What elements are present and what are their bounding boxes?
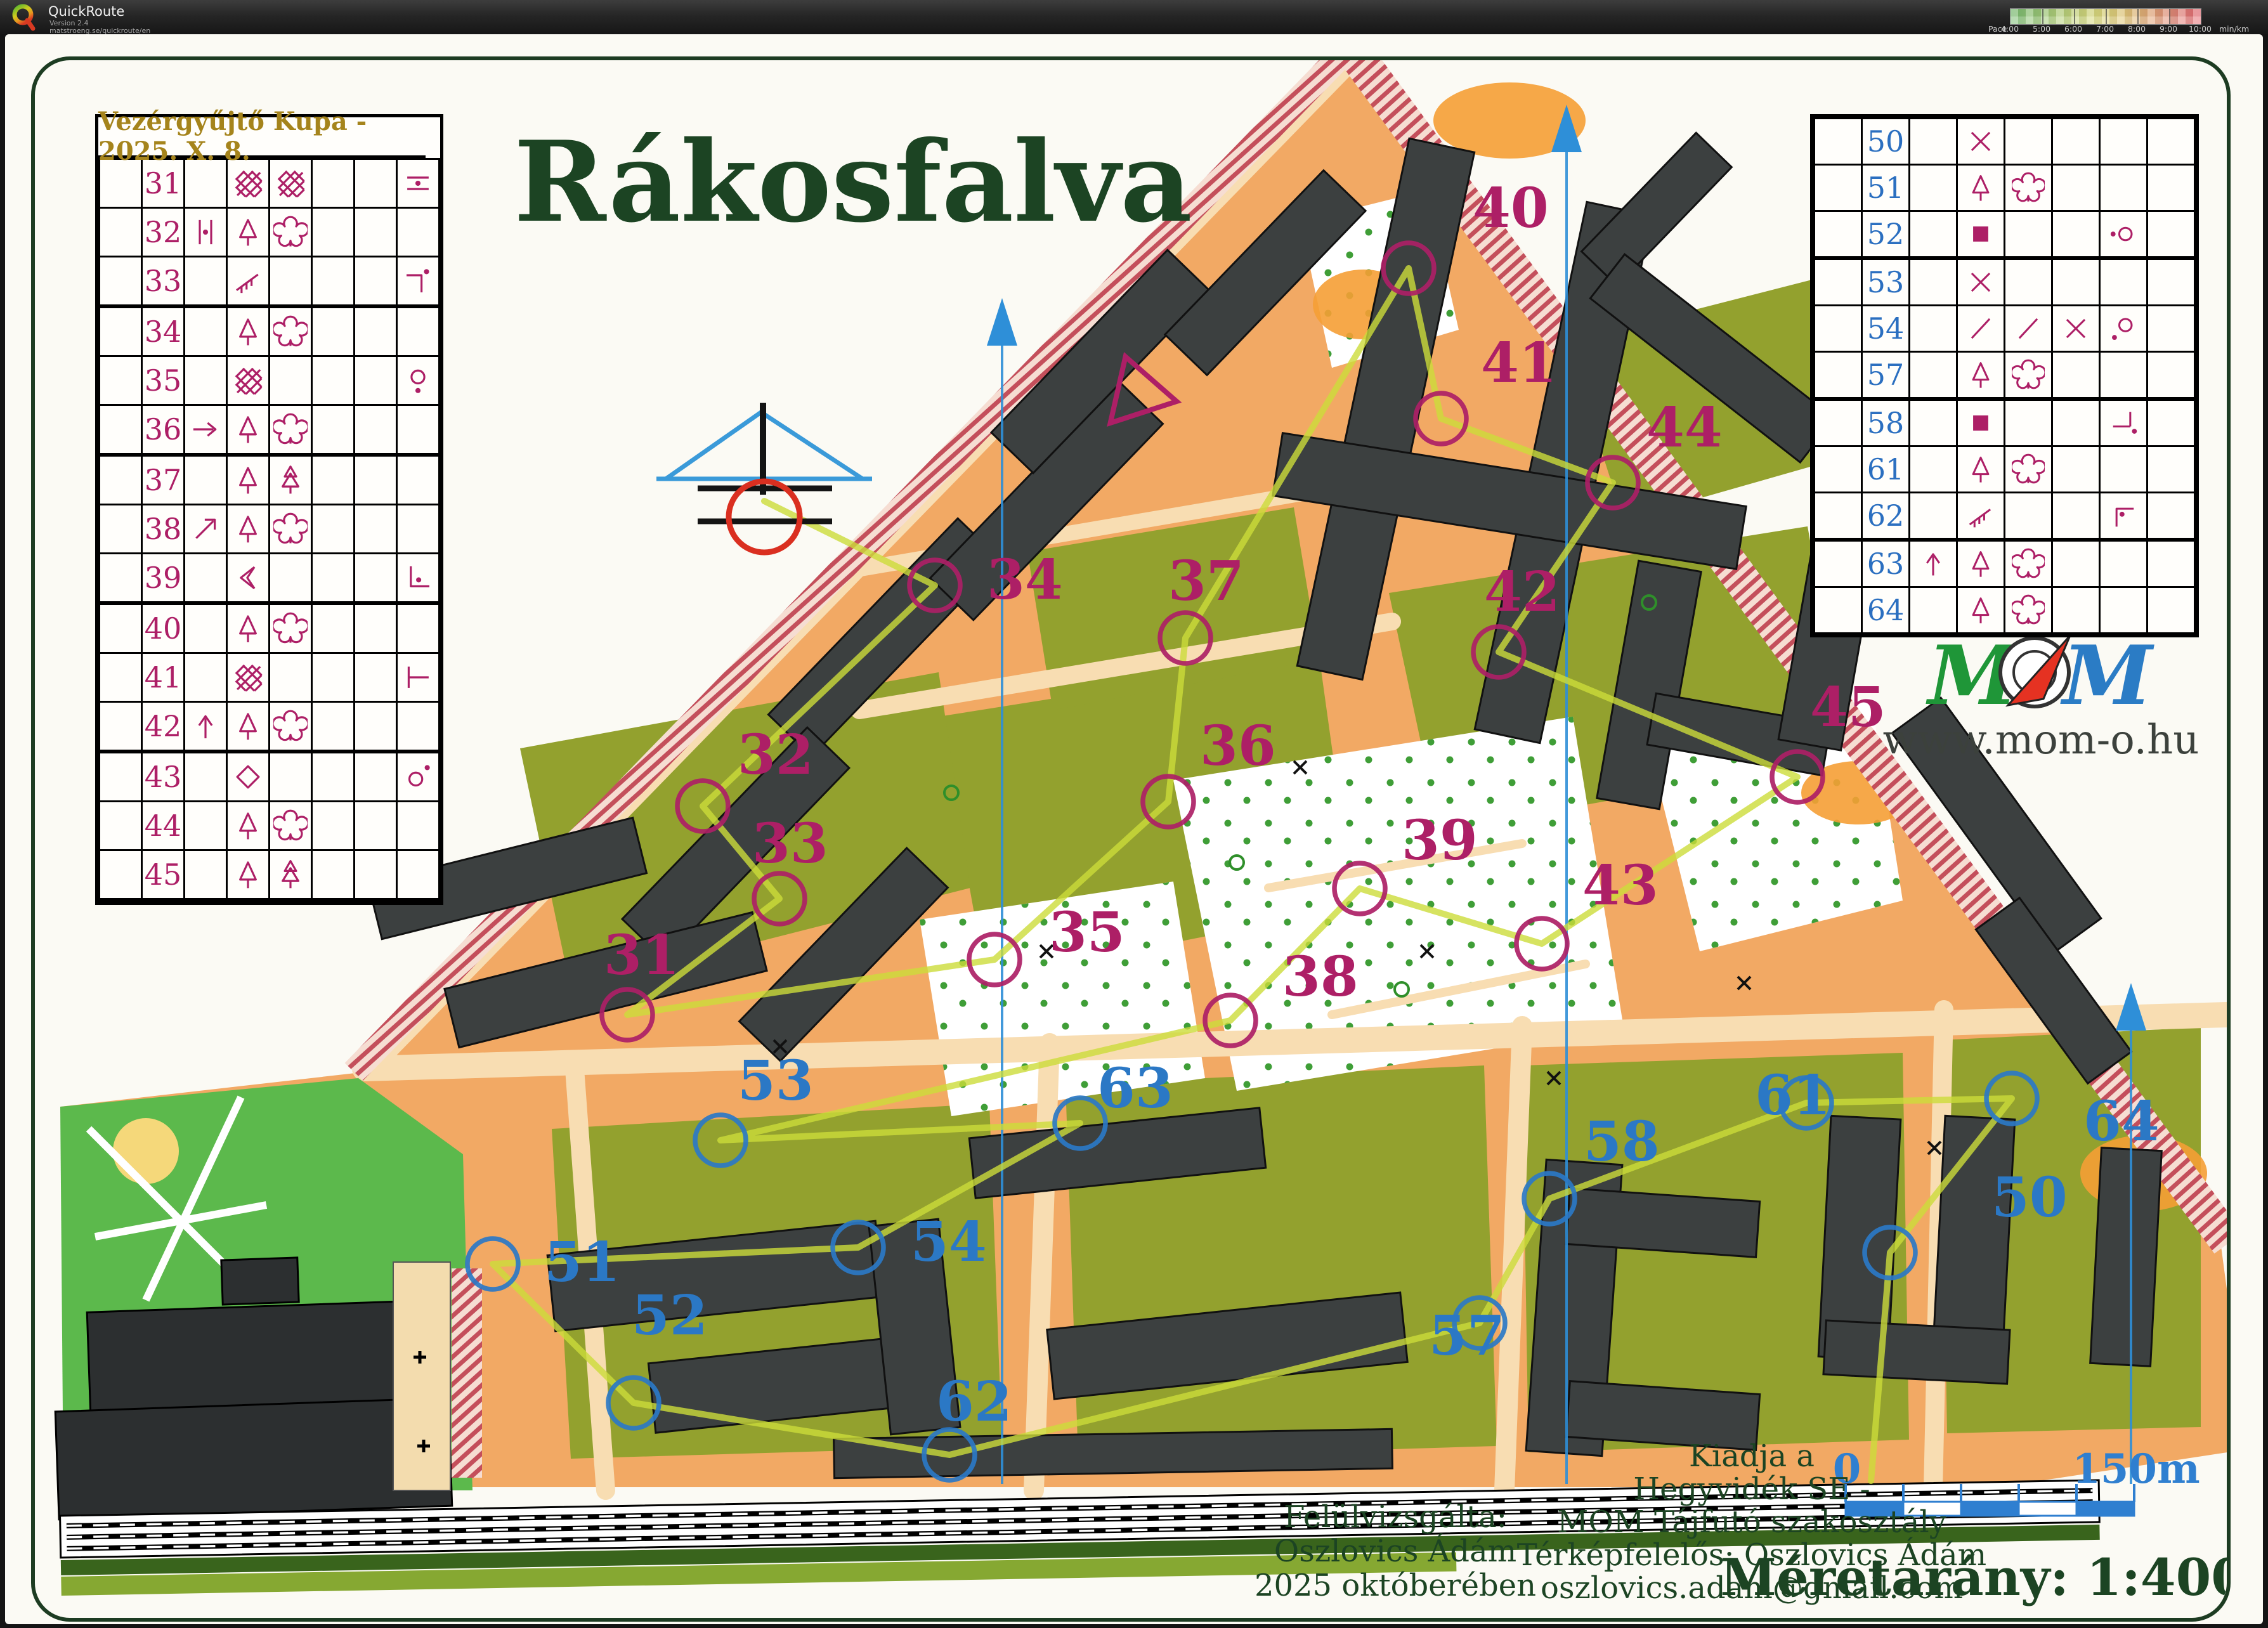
control-symbol-cell — [227, 159, 270, 208]
corner-se-dot-symbol-icon — [2107, 407, 2140, 440]
square-symbol-icon — [1964, 407, 1997, 440]
bush-symbol-icon — [2012, 594, 2045, 627]
tree-symbol-icon — [1964, 171, 1997, 204]
svg-text:2025 októberében: 2025 októberében — [1255, 1568, 1536, 1603]
empty-cell — [397, 306, 440, 356]
empty-cell — [2052, 540, 2100, 587]
empty-cell — [2147, 540, 2195, 587]
circle-dot-sw-symbol-icon — [2107, 312, 2140, 345]
empty-cell — [2100, 540, 2147, 587]
control-description-row-45: 45 — [100, 850, 440, 901]
empty-cell — [397, 505, 440, 554]
control-code: 51 — [1862, 165, 1910, 211]
control-number-42: 42 — [1484, 560, 1560, 624]
tree-symbol-icon — [231, 512, 265, 546]
control-symbol-cell — [227, 850, 270, 901]
empty-cell — [2052, 587, 2100, 634]
empty-cell — [100, 554, 142, 604]
empty-cell — [355, 752, 397, 802]
empty-cell — [100, 208, 142, 257]
bush-symbol-icon — [2012, 547, 2045, 580]
tree-symbol-icon — [1964, 358, 1997, 391]
fir-symbol-icon — [273, 857, 308, 892]
empty-cell — [312, 850, 355, 901]
control-number-45: 45 — [1810, 675, 1886, 739]
control-symbol-cell — [227, 505, 270, 554]
control-code: 40 — [142, 603, 185, 653]
empty-cell — [2052, 399, 2100, 446]
arrow-right-symbol-icon — [188, 412, 223, 446]
control-number-58: 58 — [1584, 1110, 1660, 1174]
empty-cell — [100, 405, 142, 455]
control-symbol-cell — [397, 257, 440, 307]
empty-cell — [185, 603, 227, 653]
control-symbol-cell — [185, 505, 227, 554]
empty-cell — [2147, 258, 2195, 306]
empty-cell — [1910, 399, 1957, 446]
control-symbol-cell — [227, 702, 270, 752]
tree-symbol-icon — [231, 857, 265, 892]
empty-cell — [185, 850, 227, 901]
empty-cell — [355, 455, 397, 505]
control-code: 38 — [142, 505, 185, 554]
empty-cell — [2147, 306, 2195, 352]
slash-symbol-icon — [2012, 312, 2045, 345]
empty-cell — [2052, 119, 2100, 165]
empty-cell — [355, 405, 397, 455]
control-description-table: 313233343536373839404142434445 — [98, 158, 440, 902]
empty-cell — [2100, 587, 2147, 634]
empty-cell — [2005, 119, 2052, 165]
spur-symbol-icon — [231, 561, 265, 595]
empty-cell — [185, 455, 227, 505]
empty-cell — [397, 455, 440, 505]
empty-cell — [1910, 119, 1957, 165]
empty-cell — [355, 554, 397, 604]
square-symbol-icon — [1964, 218, 1997, 251]
empty-cell — [355, 505, 397, 554]
thicket-symbol-icon — [231, 166, 265, 200]
control-symbol-cell — [2100, 399, 2147, 446]
control-description-row-53: 53 — [1815, 258, 2195, 306]
control-symbol-cell — [270, 505, 312, 554]
control-symbol-cell — [397, 653, 440, 702]
control-description-row-63: 63 — [1815, 540, 2195, 587]
control-symbol-cell — [2100, 211, 2147, 259]
control-description-row-34: 34 — [100, 306, 440, 356]
control-symbol-cell — [227, 802, 270, 850]
empty-cell — [312, 752, 355, 802]
arrow-up-symbol-icon — [188, 709, 223, 743]
control-symbol-cell — [227, 603, 270, 653]
control-number-40: 40 — [1473, 176, 1549, 240]
empty-cell — [185, 306, 227, 356]
bush-symbol-icon — [273, 709, 308, 743]
arrow-ne-symbol-icon — [188, 512, 223, 546]
control-code: 41 — [142, 653, 185, 702]
svg-text:Felülvizsgálta:: Felülvizsgálta: — [1284, 1499, 1507, 1535]
control-description-row-35: 35 — [100, 356, 440, 405]
empty-cell — [185, 257, 227, 307]
control-number-64: 64 — [2083, 1090, 2160, 1154]
empty-cell — [2147, 446, 2195, 493]
control-symbol-cell — [1957, 165, 2005, 211]
empty-cell — [270, 257, 312, 307]
mom-logo-m-right: M — [2060, 628, 2154, 724]
empty-cell — [2005, 258, 2052, 306]
empty-cell — [397, 208, 440, 257]
tree-symbol-icon — [231, 709, 265, 743]
control-number-36: 36 — [1200, 714, 1276, 778]
empty-cell — [312, 306, 355, 356]
control-code: 35 — [142, 356, 185, 405]
empty-cell — [270, 356, 312, 405]
control-symbol-cell — [1957, 493, 2005, 540]
empty-cell — [1815, 306, 1862, 352]
control-symbol-cell — [270, 802, 312, 850]
svg-text:oszlovics.adam@gmail.com: oszlovics.adam@gmail.com — [1541, 1570, 1963, 1606]
control-code: 52 — [1862, 211, 1910, 259]
control-description-row-51: 51 — [1815, 165, 2195, 211]
svg-text:Térképfelelős: Oszlovics Ádám: Térképfelelős: Oszlovics Ádám — [1517, 1537, 1986, 1573]
control-code: 58 — [1862, 399, 1910, 446]
empty-cell — [1815, 587, 1862, 634]
control-number-51: 51 — [544, 1230, 620, 1294]
control-code: 61 — [1862, 446, 1910, 493]
empty-cell — [100, 306, 142, 356]
tree-symbol-icon — [1964, 547, 1997, 580]
control-description-row-61: 61 — [1815, 446, 2195, 493]
bush-symbol-icon — [2012, 453, 2045, 486]
control-symbol-cell — [1957, 540, 2005, 587]
tree-symbol-icon — [231, 809, 265, 843]
control-symbol-cell — [2100, 493, 2147, 540]
empty-cell — [355, 306, 397, 356]
control-number-38: 38 — [1282, 945, 1359, 1009]
control-number-57: 57 — [1429, 1304, 1505, 1368]
empty-cell — [2100, 119, 2147, 165]
control-code: 64 — [1862, 587, 1910, 634]
control-symbol-cell — [227, 405, 270, 455]
control-description-row-32: 32 — [100, 208, 440, 257]
corner-ne-dot-symbol-icon — [401, 264, 435, 298]
map-park — [55, 1078, 482, 1520]
tbar-symbol-icon — [401, 660, 435, 694]
empty-cell — [355, 702, 397, 752]
empty-cell — [2005, 211, 2052, 259]
control-code: 39 — [142, 554, 185, 604]
control-symbol-cell — [1957, 399, 2005, 446]
control-symbol-cell — [397, 752, 440, 802]
tree-symbol-icon — [231, 412, 265, 446]
svg-text:Oszlovics Ádám: Oszlovics Ádám — [1274, 1533, 1516, 1569]
control-symbol-cell — [1957, 119, 2005, 165]
bush-symbol-icon — [273, 809, 308, 843]
empty-cell — [2147, 399, 2195, 446]
control-number-34: 34 — [987, 548, 1063, 612]
control-number-44: 44 — [1646, 396, 1723, 460]
control-symbol-cell — [2005, 306, 2052, 352]
empty-cell — [355, 850, 397, 901]
empty-cell — [397, 702, 440, 752]
crossing-symbol-icon — [1964, 125, 1997, 158]
empty-cell — [100, 850, 142, 901]
empty-cell — [2052, 446, 2100, 493]
bush-symbol-icon — [273, 611, 308, 646]
control-number-41: 41 — [1481, 331, 1557, 395]
control-code: 34 — [142, 306, 185, 356]
control-symbol-cell — [2005, 446, 2052, 493]
empty-cell — [312, 257, 355, 307]
thicket-symbol-icon — [231, 660, 265, 694]
empty-cell — [397, 603, 440, 653]
control-symbol-cell — [270, 405, 312, 455]
empty-cell — [2005, 399, 2052, 446]
control-symbol-cell — [270, 603, 312, 653]
empty-cell — [2147, 119, 2195, 165]
control-number-62: 62 — [936, 1370, 1012, 1434]
empty-cell — [312, 603, 355, 653]
crossing-symbol-icon — [2059, 312, 2092, 345]
empty-cell — [185, 554, 227, 604]
control-symbol-cell — [185, 208, 227, 257]
empty-cell — [1815, 119, 1862, 165]
empty-cell — [2147, 165, 2195, 211]
control-symbol-cell — [1957, 587, 2005, 634]
control-description-row-57: 57 — [1815, 352, 2195, 400]
empty-cell — [185, 653, 227, 702]
slash-symbol-icon — [1964, 312, 1997, 345]
control-symbol-cell — [2005, 587, 2052, 634]
bush-symbol-icon — [273, 512, 308, 546]
fir-symbol-icon — [273, 463, 308, 497]
control-symbol-cell — [270, 702, 312, 752]
empty-cell — [2147, 211, 2195, 259]
quickroute-window: QuickRoute Version 2.4 matstroeng.se/qui… — [0, 0, 2268, 1628]
empty-cell — [355, 208, 397, 257]
control-code: 42 — [142, 702, 185, 752]
between-symbol-icon — [401, 166, 435, 200]
empty-cell — [2052, 352, 2100, 400]
empty-cell — [312, 159, 355, 208]
control-number-50: 50 — [1991, 1166, 2068, 1230]
empty-cell — [355, 356, 397, 405]
control-code: 53 — [1862, 258, 1910, 306]
empty-cell — [270, 752, 312, 802]
control-symbol-cell — [227, 257, 270, 307]
control-symbol-cell — [1957, 258, 2005, 306]
empty-cell — [1910, 258, 1957, 306]
empty-cell — [1815, 540, 1862, 587]
empty-cell — [355, 603, 397, 653]
empty-cell — [355, 653, 397, 702]
club-website[interactable]: www.mom-o.hu — [1883, 717, 2200, 764]
control-number-37: 37 — [1168, 549, 1244, 613]
empty-cell — [312, 208, 355, 257]
bush-symbol-icon — [2012, 171, 2045, 204]
control-symbol-cell — [397, 554, 440, 604]
empty-cell — [2100, 352, 2147, 400]
control-description-row-33: 33 — [100, 257, 440, 307]
empty-cell — [2100, 258, 2147, 306]
control-description-row-64: 64 — [1815, 587, 2195, 634]
control-code: 36 — [142, 405, 185, 455]
control-number-63: 63 — [1097, 1057, 1173, 1121]
control-number-35: 35 — [1049, 901, 1125, 965]
control-symbol-cell — [1957, 306, 2005, 352]
control-symbol-cell — [227, 455, 270, 505]
control-description-row-43: 43 — [100, 752, 440, 802]
thicket-symbol-icon — [231, 363, 265, 398]
tree-symbol-icon — [231, 611, 265, 646]
empty-cell — [100, 455, 142, 505]
empty-cell — [1910, 306, 1957, 352]
empty-cell — [397, 802, 440, 850]
empty-cell — [355, 159, 397, 208]
control-symbol-cell — [397, 159, 440, 208]
control-symbol-cell — [2052, 306, 2100, 352]
empty-cell — [185, 356, 227, 405]
empty-cell — [100, 653, 142, 702]
circle-dot-ne-symbol-icon — [401, 760, 435, 794]
empty-cell — [1815, 352, 1862, 400]
control-symbol-cell — [227, 306, 270, 356]
empty-cell — [100, 603, 142, 653]
bush-symbol-icon — [273, 315, 308, 349]
empty-cell — [2100, 165, 2147, 211]
empty-cell — [100, 752, 142, 802]
control-code: 31 — [142, 159, 185, 208]
empty-cell — [2147, 493, 2195, 540]
corner-sw-dot-symbol-icon — [401, 561, 435, 595]
control-symbol-cell — [227, 554, 270, 604]
map-title: Rákosfalva — [514, 117, 1192, 247]
empty-cell — [2052, 165, 2100, 211]
control-symbol-cell — [1910, 540, 1957, 587]
control-code: 50 — [1862, 119, 1910, 165]
empty-cell — [2147, 352, 2195, 400]
control-symbol-cell — [397, 356, 440, 405]
control-symbol-cell — [270, 306, 312, 356]
control-description-row-40: 40 — [100, 603, 440, 653]
control-symbol-cell — [2005, 352, 2052, 400]
circle-dot-below-symbol-icon — [401, 363, 435, 398]
mom-logo: M M — [1926, 628, 2154, 724]
svg-text:MOM Tájfutó szakosztály: MOM Tájfutó szakosztály — [1557, 1504, 1946, 1540]
svg-text:Kiadja a: Kiadja a — [1689, 1438, 1815, 1474]
control-number-54: 54 — [911, 1210, 987, 1274]
control-description-row-52: 52 — [1815, 211, 2195, 259]
empty-cell — [1910, 211, 1957, 259]
control-description-row-62: 62 — [1815, 493, 2195, 540]
empty-cell — [1815, 211, 1862, 259]
control-symbol-cell — [1957, 211, 2005, 259]
control-description-table: 5051525354575861626364 — [1813, 117, 2196, 634]
control-number-53: 53 — [738, 1049, 814, 1113]
bush-symbol-icon — [273, 412, 308, 446]
control-number-43: 43 — [1582, 854, 1659, 918]
empty-cell — [355, 257, 397, 307]
corner-nw-dot-symbol-icon — [2107, 499, 2140, 532]
empty-cell — [397, 850, 440, 901]
control-description-row-38: 38 — [100, 505, 440, 554]
empty-cell — [312, 802, 355, 850]
tree-symbol-icon — [231, 215, 265, 249]
bush-symbol-icon — [273, 215, 308, 249]
control-symbol-cell — [2005, 540, 2052, 587]
control-number-32: 32 — [738, 723, 814, 787]
bush-symbol-icon — [2012, 358, 2045, 391]
arrow-up-symbol-icon — [1917, 547, 1950, 580]
control-code: 62 — [1862, 493, 1910, 540]
control-number-33: 33 — [752, 812, 828, 876]
control-code: 33 — [142, 257, 185, 307]
empty-cell — [185, 752, 227, 802]
empty-cell — [1815, 258, 1862, 306]
control-description-row-44: 44 — [100, 802, 440, 850]
control-symbol-cell — [185, 405, 227, 455]
empty-cell — [1815, 165, 1862, 211]
control-symbol-cell — [227, 208, 270, 257]
tree-symbol-icon — [1964, 594, 1997, 627]
control-description-row-36: 36 — [100, 405, 440, 455]
thicket-symbol-icon — [273, 166, 308, 200]
control-symbol-cell — [2100, 306, 2147, 352]
control-descriptions-left: Vezérgyűjtő Kupa - 2025. X. 8. 313233343… — [95, 114, 443, 905]
control-code: 32 — [142, 208, 185, 257]
empty-cell — [2147, 587, 2195, 634]
control-number-39: 39 — [1402, 809, 1478, 873]
control-description-row-41: 41 — [100, 653, 440, 702]
empty-cell — [312, 405, 355, 455]
control-code: 44 — [142, 802, 185, 850]
empty-cell — [1910, 493, 1957, 540]
control-symbol-cell — [227, 356, 270, 405]
control-symbol-cell — [270, 455, 312, 505]
empty-cell — [312, 505, 355, 554]
control-description-row-54: 54 — [1815, 306, 2195, 352]
svg-text:Hegyvidék SE -: Hegyvidék SE - — [1633, 1471, 1870, 1507]
empty-cell — [100, 802, 142, 850]
control-symbol-cell — [1957, 352, 2005, 400]
empty-cell — [1910, 587, 1957, 634]
control-symbol-cell — [227, 653, 270, 702]
control-code: 43 — [142, 752, 185, 802]
control-symbol-cell — [270, 850, 312, 901]
empty-cell — [312, 702, 355, 752]
tree-symbol-icon — [231, 463, 265, 497]
empty-cell — [185, 159, 227, 208]
empty-cell — [2052, 493, 2100, 540]
control-descriptions-right: 5051525354575861626364 — [1810, 114, 2199, 637]
empty-cell — [185, 802, 227, 850]
control-symbol-cell — [1957, 446, 2005, 493]
control-description-row-42: 42 — [100, 702, 440, 752]
empty-cell — [1910, 352, 1957, 400]
control-symbol-cell — [185, 702, 227, 752]
fence-symbol-icon — [231, 264, 265, 298]
control-code: 63 — [1862, 540, 1910, 587]
empty-cell — [270, 554, 312, 604]
empty-cell — [2052, 258, 2100, 306]
empty-cell — [312, 653, 355, 702]
control-symbol-cell — [227, 752, 270, 802]
empty-cell — [1815, 399, 1862, 446]
empty-cell — [270, 653, 312, 702]
empty-cell — [312, 554, 355, 604]
empty-cell — [1815, 493, 1862, 540]
control-code: 37 — [142, 455, 185, 505]
